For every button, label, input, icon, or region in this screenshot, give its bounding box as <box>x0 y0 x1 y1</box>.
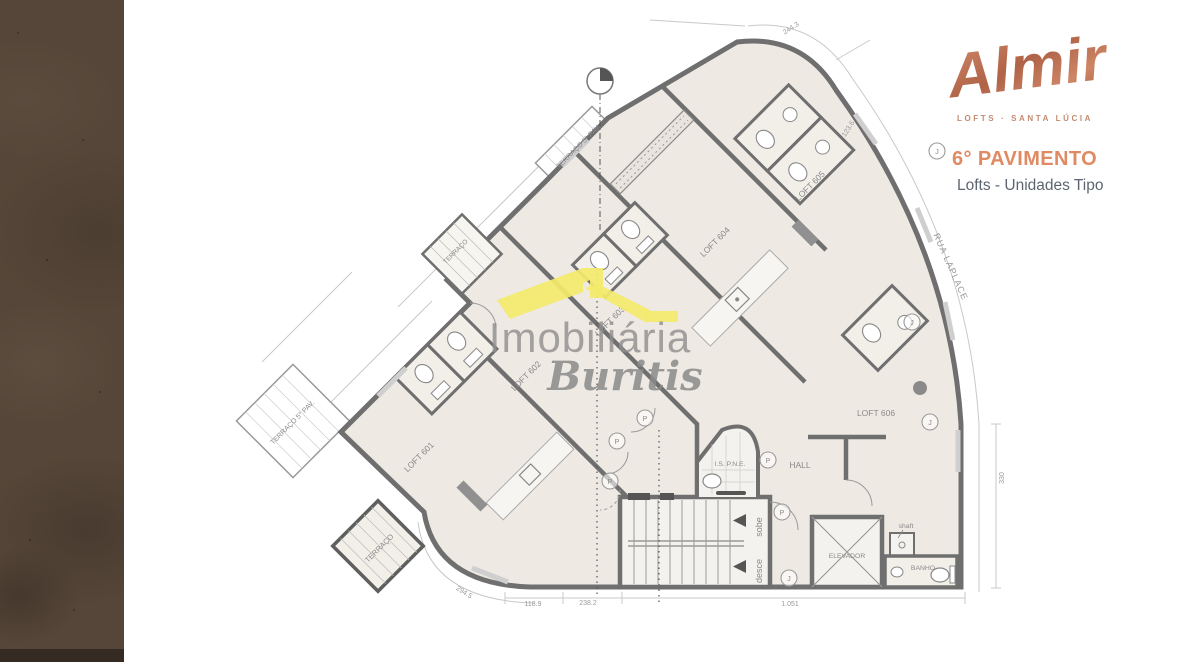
label-banho: BANHO <box>911 565 935 572</box>
dim-330: 330 <box>999 472 1006 484</box>
label-shaft: shaft <box>899 523 914 530</box>
north-symbol <box>587 68 613 94</box>
marker-letter: P <box>643 416 648 423</box>
marker-letter: P <box>615 439 620 446</box>
marker-letter: P <box>608 479 613 486</box>
marker-letter: P <box>766 458 771 465</box>
marker-letter: J <box>935 149 939 156</box>
label-is-pne: I.S. P.N.E. <box>715 461 746 468</box>
elevator <box>812 517 882 587</box>
stairwell <box>620 493 770 587</box>
label-hall: HALL <box>789 460 811 470</box>
column-606 <box>913 381 927 395</box>
dim-238-2: 238.2 <box>579 600 597 607</box>
label-desce: desce <box>754 559 764 583</box>
label-sobe: sobe <box>754 517 764 537</box>
marker-letter: J <box>910 320 914 327</box>
logo-script-text: Almir <box>942 23 1113 111</box>
watermark-line2: Buritis <box>546 353 702 400</box>
shaft-box <box>890 530 914 556</box>
marker-letter: J <box>928 420 932 427</box>
floor-subtitle: Lofts - Unidades Tipo <box>957 177 1103 195</box>
dim-294-5: 294.5 <box>455 585 474 600</box>
floor-title: 6° PAVIMENTO <box>952 148 1097 171</box>
label-loft-606: LOFT 606 <box>857 408 895 418</box>
marker-letter: J <box>787 576 791 583</box>
marker-letter: P <box>780 510 785 517</box>
logo-tagline: LOFTS · SANTA LÚCIA <box>930 114 1120 123</box>
page: P P P P P J J J J LOFT 601 LOFT 602 LOFT… <box>0 0 1180 662</box>
brand-panel: Almir LOFTS · SANTA LÚCIA 6° PAVIMENTO L… <box>908 22 1158 122</box>
dim-244-3: 244.3 <box>782 21 801 36</box>
label-elevador: ELEVADOR <box>829 553 866 560</box>
dim-1051: 1.051 <box>781 601 799 608</box>
dim-118-9: 118.9 <box>525 601 542 608</box>
logo: Almir <box>908 22 1148 122</box>
